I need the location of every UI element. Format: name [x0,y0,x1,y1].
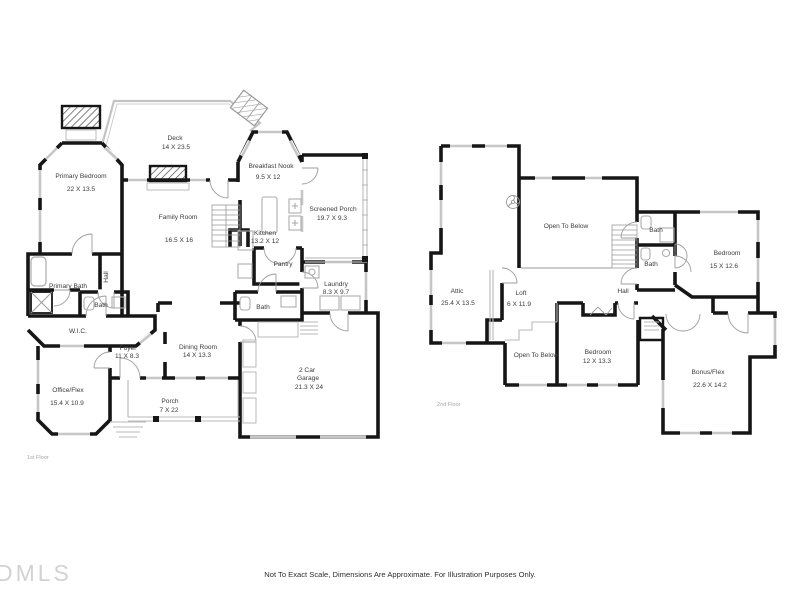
room-dims: 25.4 X 13.5 [441,300,475,307]
room-label: Bath [256,304,270,311]
room-label: Porch [161,398,179,405]
room-label: Screened Porch [309,206,357,213]
upper-stairs [521,225,637,268]
room-label: Hall [103,271,110,283]
room-label: Kitchen [254,230,276,237]
room-dims: 7 X 22 [159,407,178,414]
room-label: Bath [644,261,658,268]
porch-post [362,256,368,262]
room-label: Garage [297,375,319,382]
room-label: Office/Flex [52,387,84,394]
bath-fixtures-2 [641,216,674,260]
room-label: Foyer [120,345,138,352]
room-label: Pantry [273,261,293,268]
room-dims: 19.7 X 9.3 [317,215,347,222]
first-floor-plan: Deck 14 X 23.5 Primary Bedroom 22 X 13.5… [27,90,378,461]
fireplace-hearth [147,183,189,190]
walls-second-floor [431,146,775,433]
floorplan-drawing: Deck 14 X 23.5 Primary Bedroom 22 X 13.5… [0,0,800,600]
room-dims: 14 X 23.5 [162,144,191,151]
room-dims: 6 X 11.9 [507,301,531,308]
porch-post [153,416,159,422]
room-label: Bath [649,227,663,234]
chimney [62,106,100,128]
deck-stairs [230,90,267,126]
room-dims: 22.6 X 14.2 [693,382,727,389]
room-label: Primary Bath [49,283,87,290]
porch-post [362,153,368,159]
room-label: Primary Bedroom [55,173,107,180]
room-dims: 15 X 12.6 [710,263,739,270]
windows-2 [431,146,775,433]
floorplan-page: Deck 14 X 23.5 Primary Bedroom 22 X 13.5… [0,0,800,600]
room-label: Bedroom [714,250,741,257]
room-dims: 11 X 8.3 [115,353,139,360]
second-floor-plan: Open To Below Attic 25.4 X 13.5 Loft 6 X… [431,146,775,433]
room-dims: 9.5 X 12 [256,174,281,181]
room-dims: 15.4 X 10.9 [50,400,84,407]
door-swings-2 [502,222,748,333]
room-dims: 16.5 X 16 [165,237,194,244]
room-label: Bedroom [585,349,612,356]
porch-post [195,416,201,422]
shower [31,292,52,313]
room-dims: 8.3 X 9.7 [323,289,350,296]
room-dims: 21.3 X 24 [295,384,324,391]
main-stairs [212,205,240,247]
room-label: Attic [451,288,465,295]
room-dims: 12 X 13.3 [583,358,612,365]
room-label: Family Room [159,214,198,221]
room-label: Dining Room [179,344,218,351]
room-label: W.I.C. [69,328,87,335]
room-label: Bonus/Flex [692,369,726,376]
floor-label-2: 2nd Floor [437,402,461,408]
room-label: Deck [167,135,183,142]
disclaimer-text: Not To Exact Scale, Dimensions Are Appro… [0,570,800,579]
room-label: Laundry [324,281,349,288]
room-label: Loft [516,290,527,297]
room-label: Bath [94,302,108,309]
room-dims: 22 X 13.5 [67,186,96,193]
bathtub [31,257,46,286]
room-label: Hall [617,288,629,295]
room-dims: 13.2 X 12 [251,238,280,245]
room-label: Open To Below [544,223,589,230]
room-dims: 14 X 13.3 [183,352,212,359]
chimney-ledge [66,130,96,140]
room-label: Open To Below [514,352,559,359]
windows-underlay-2 [431,146,775,433]
room-label: 2 Car [299,367,316,374]
first-floor-labels: Deck 14 X 23.5 Primary Bedroom 22 X 13.5… [27,135,357,461]
floor-label-1: 1st Floor [27,455,49,461]
room-label: Breakfast Nook [248,163,294,170]
